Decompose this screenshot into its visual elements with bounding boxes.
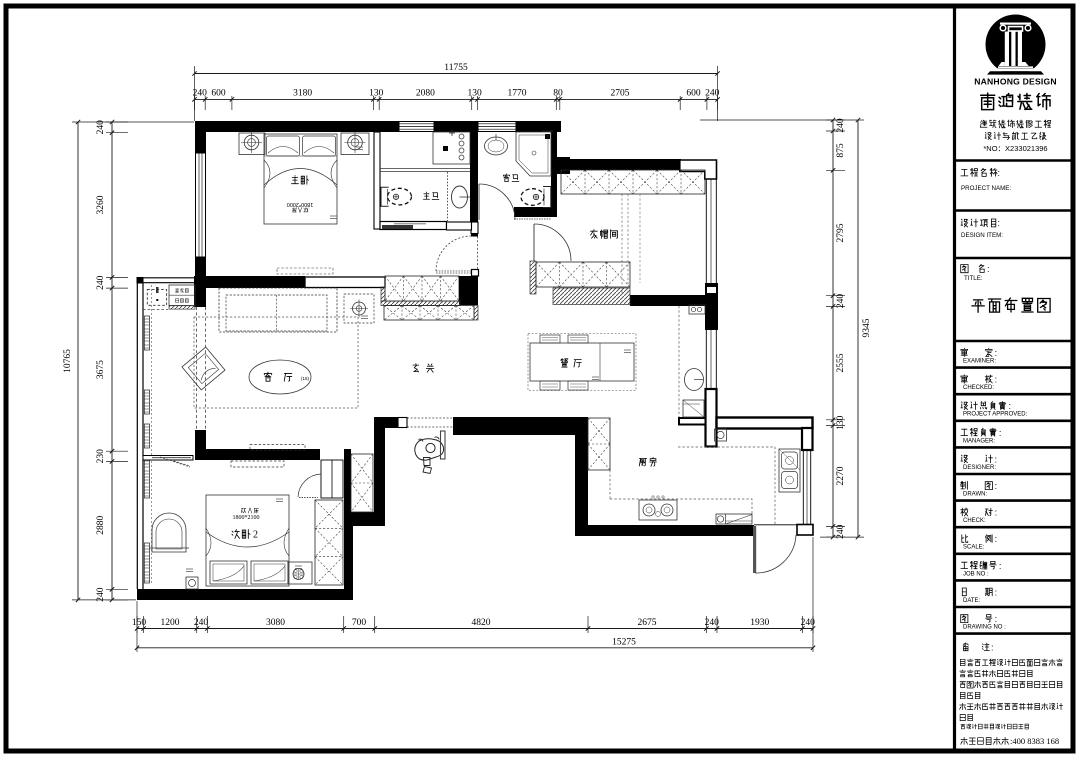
svg-text:11755: 11755	[444, 63, 468, 73]
svg-text::: :	[998, 168, 1001, 178]
svg-text:1770: 1770	[508, 89, 527, 99]
svg-text:240: 240	[96, 587, 106, 602]
svg-text:1800*2000: 1800*2000	[287, 201, 314, 207]
svg-text:15275: 15275	[612, 638, 636, 648]
svg-text:600: 600	[211, 89, 226, 99]
svg-text::: :	[995, 534, 998, 544]
svg-text:2080: 2080	[416, 89, 435, 99]
svg-text::: :	[987, 264, 990, 274]
svg-text:4820: 4820	[472, 618, 491, 628]
svg-text:2555: 2555	[836, 353, 846, 372]
svg-text:SCALE:: SCALE:	[963, 545, 985, 551]
svg-text::: :	[995, 481, 998, 491]
svg-text:3180: 3180	[293, 89, 312, 99]
svg-text:130: 130	[836, 415, 846, 430]
svg-text:240: 240	[836, 118, 846, 133]
svg-text:80: 80	[553, 89, 563, 99]
svg-text::: :	[995, 348, 998, 358]
svg-text:EXAMINER:: EXAMINER:	[963, 359, 996, 365]
svg-text:3675: 3675	[96, 360, 106, 379]
svg-text:875: 875	[836, 143, 846, 158]
svg-text:DRAWING NO :: DRAWING NO :	[963, 625, 1006, 631]
svg-text::: :	[998, 218, 1001, 228]
svg-text:DESIGNER:: DESIGNER:	[963, 465, 996, 471]
svg-text:130: 130	[467, 89, 482, 99]
svg-text:240: 240	[836, 294, 846, 309]
svg-text:PROJECT NAME:: PROJECT NAME:	[961, 185, 1011, 192]
svg-text:DRAWN:: DRAWN:	[963, 492, 987, 498]
svg-text:240: 240	[705, 618, 720, 628]
svg-text:NANHONG DESIGN: NANHONG DESIGN	[974, 77, 1057, 87]
svg-text::: :	[995, 375, 998, 385]
svg-text:1930: 1930	[750, 618, 769, 628]
svg-text:TITLE:: TITLE:	[964, 275, 983, 282]
svg-text:2270: 2270	[836, 466, 846, 485]
svg-text:3260: 3260	[96, 195, 106, 214]
svg-text:9345: 9345	[862, 318, 872, 337]
svg-text:2795: 2795	[836, 223, 846, 242]
svg-text::: :	[1009, 401, 1012, 411]
svg-text::: :	[995, 614, 998, 624]
svg-text:3080: 3080	[266, 618, 285, 628]
svg-text:2705: 2705	[611, 89, 630, 99]
svg-text:240: 240	[194, 618, 209, 628]
svg-text::: :	[995, 508, 998, 518]
svg-text:130: 130	[369, 89, 384, 99]
svg-text:1800*2100: 1800*2100	[233, 515, 260, 521]
svg-text:(15): (15)	[301, 376, 310, 381]
svg-text:700: 700	[352, 618, 367, 628]
svg-text:240: 240	[836, 524, 846, 539]
svg-text:2880: 2880	[96, 516, 106, 535]
svg-text:600: 600	[686, 89, 701, 99]
svg-text::: :	[999, 428, 1002, 438]
svg-text:CHECKED:: CHECKED:	[963, 385, 994, 391]
svg-text:CHECK:: CHECK:	[963, 518, 986, 524]
svg-text:2675: 2675	[638, 618, 657, 628]
svg-text::400 8383 168: :400 8383 168	[1010, 736, 1059, 746]
svg-text::: :	[991, 643, 994, 653]
svg-text:DESIGN ITEM:: DESIGN ITEM:	[961, 232, 1003, 239]
svg-text:240: 240	[96, 120, 106, 135]
svg-text:230: 230	[96, 449, 106, 464]
svg-text:1200: 1200	[161, 618, 180, 628]
svg-text:240: 240	[96, 275, 106, 290]
svg-text::: :	[995, 587, 998, 597]
svg-text:2: 2	[253, 530, 258, 541]
svg-text:JOB NO :: JOB NO :	[963, 571, 989, 577]
svg-text:DATE:: DATE:	[963, 598, 981, 604]
svg-text:150: 150	[132, 618, 147, 628]
svg-text:PROJECT APPROVED:: PROJECT APPROVED:	[963, 412, 1028, 418]
svg-text:10765: 10765	[63, 349, 73, 373]
svg-text:*NO：X233021396: *NO：X233021396	[983, 144, 1047, 153]
svg-text:240: 240	[193, 89, 208, 99]
svg-text:240: 240	[705, 89, 720, 99]
svg-text:MANAGER:: MANAGER:	[963, 438, 995, 444]
svg-text::: :	[999, 561, 1002, 571]
svg-text::: :	[995, 454, 998, 464]
